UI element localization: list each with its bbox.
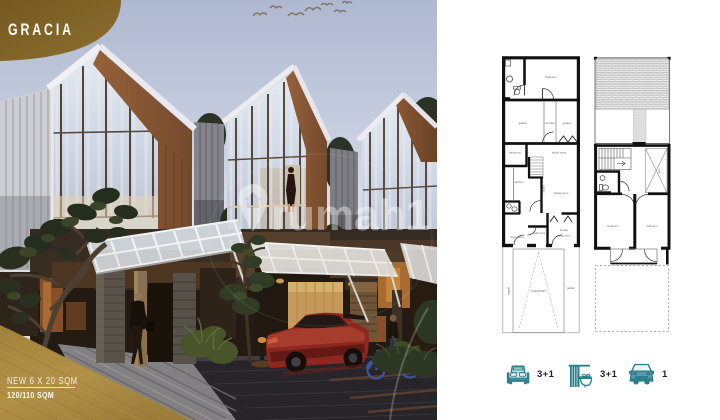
svg-text:well: well (658, 169, 662, 174)
svg-text:drying area: drying area (511, 235, 525, 239)
svg-text:corridor: corridor (545, 121, 555, 125)
svg-text:garden: garden (567, 286, 576, 290)
svg-text:family room: family room (552, 151, 567, 155)
svg-text:bedroom: bedroom (545, 75, 557, 79)
svg-text:maid room: maid room (533, 231, 545, 235)
svg-text:terrace: terrace (560, 228, 569, 232)
svg-text:rumah1: rumah1 (271, 191, 430, 240)
svg-text:bedroom: bedroom (646, 224, 658, 228)
svg-text:garden: garden (519, 121, 528, 125)
svg-text:CAR PORT: CAR PORT (531, 289, 547, 293)
svg-text:garden: garden (507, 287, 511, 296)
svg-text:bathroom: bathroom (509, 151, 521, 155)
svg-text:dining room: dining room (554, 191, 569, 195)
svg-text:garden: garden (563, 121, 572, 125)
svg-text:bedroom: bedroom (607, 224, 619, 228)
svg-text:kitchen: kitchen (515, 180, 524, 184)
